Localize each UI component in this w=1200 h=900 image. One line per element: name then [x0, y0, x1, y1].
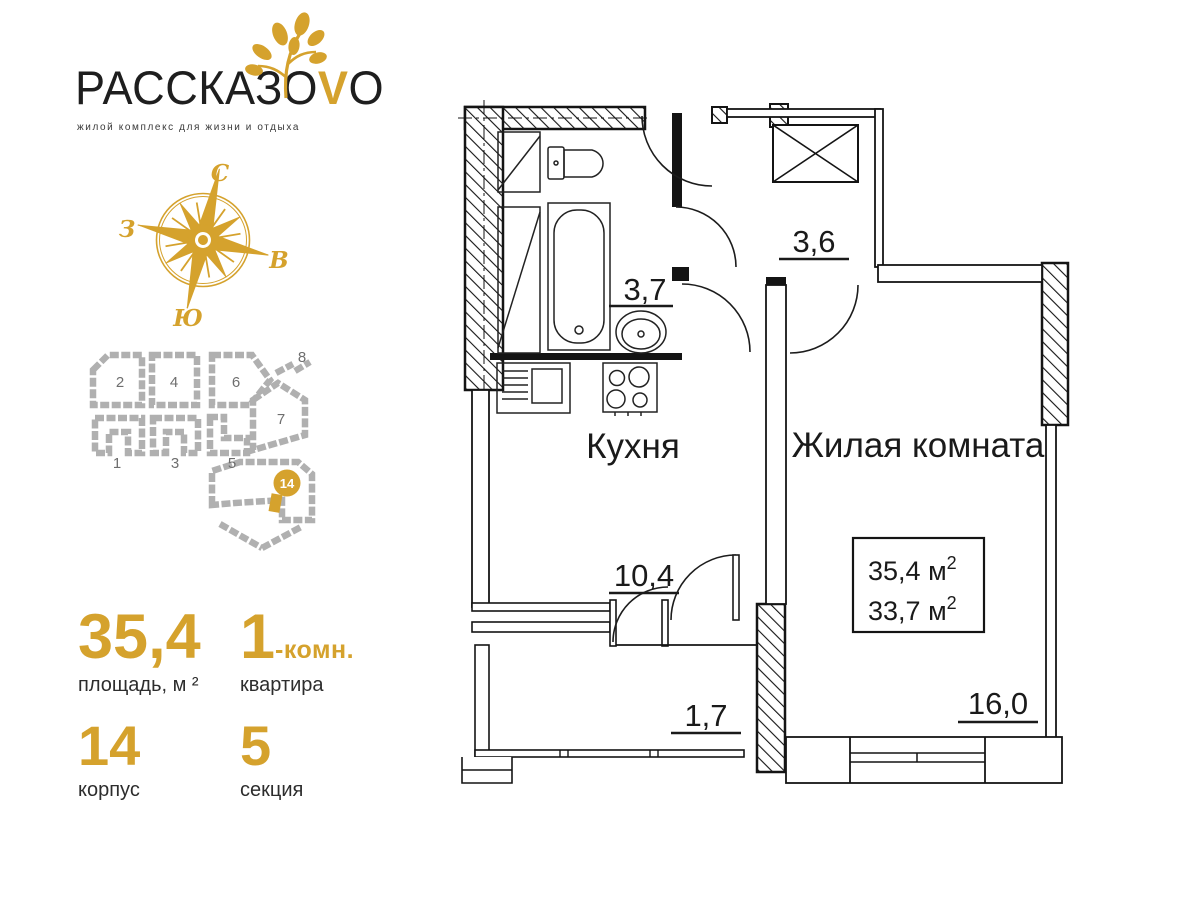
bathroom-door-arc [676, 207, 736, 267]
kitchen-fixtures [497, 363, 657, 416]
bathroom-fixtures [498, 132, 666, 353]
hall-area: 3,6 [792, 224, 835, 259]
bathroom-area: 3,7 [623, 272, 666, 307]
area-box-living: 33,7 м2 [868, 593, 957, 626]
bathtub-icon [548, 203, 610, 350]
stove-icon [603, 363, 657, 416]
living-room-door-arc [790, 285, 858, 353]
area-box-living-sup: 2 [947, 593, 957, 613]
living-area: 16,0 [968, 686, 1028, 721]
area-box-total: 35,4 м2 [868, 553, 957, 586]
kitchen-door-arc [682, 284, 750, 352]
flat-card-page: РАССКАЗОVO жилой комплекс для жизни и от… [0, 0, 1200, 900]
kitchen-area: 10,4 [614, 558, 674, 593]
area-box-total-value: 35,4 [868, 556, 921, 586]
balcony-door-leaf [733, 555, 739, 620]
kitchen-label: Кухня [586, 427, 680, 466]
area-box: 35,4 м2 33,7 м2 [853, 538, 984, 632]
balcony-window-door-arc [613, 587, 668, 642]
balcony-area: 1,7 [684, 698, 727, 733]
kitchen-counter-icon [497, 363, 570, 413]
sink-icon [616, 311, 666, 353]
balcony-door-arc [671, 555, 736, 620]
living-room-label: Жилая комната [792, 426, 1045, 465]
plan-labels: Кухня Жилая комната 3,7 3,6 10,4 1,7 16,… [586, 224, 1045, 733]
area-box-living-unit: м [921, 596, 947, 626]
area-box-total-sup: 2 [947, 553, 957, 573]
shaft-box [773, 125, 858, 182]
area-box-living-value: 33,7 [868, 596, 921, 626]
area-box-total-unit: м [921, 556, 947, 586]
floor-plan: Кухня Жилая комната 3,7 3,6 10,4 1,7 16,… [0, 0, 1200, 900]
toilet-icon [548, 147, 603, 179]
